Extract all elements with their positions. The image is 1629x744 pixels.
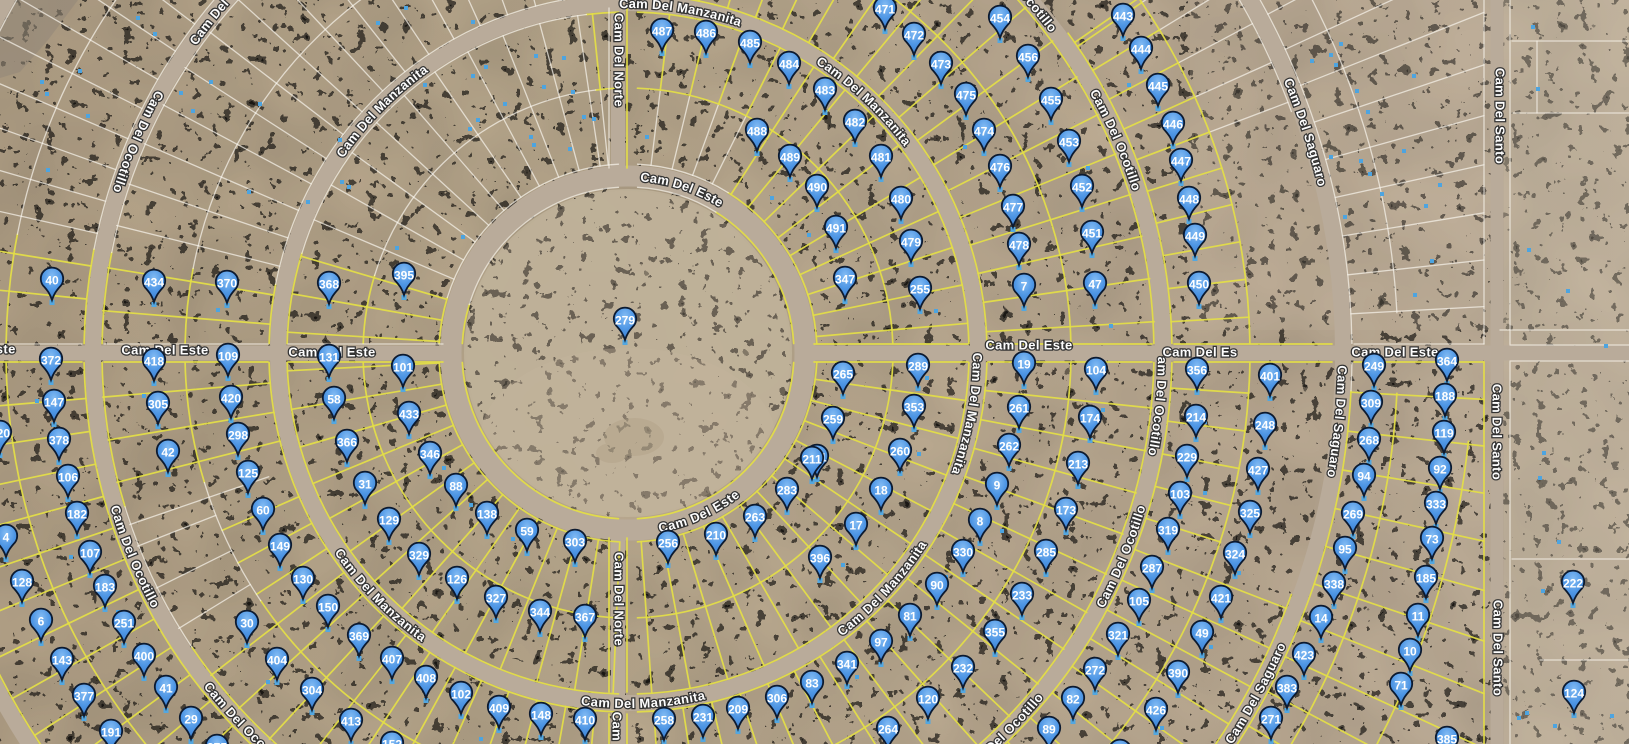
- svg-text:353: 353: [904, 401, 924, 415]
- svg-text:Cam Del Santo: Cam Del Santo: [1490, 384, 1505, 480]
- svg-text:444: 444: [1131, 43, 1151, 57]
- svg-text:347: 347: [835, 273, 855, 287]
- svg-text:147: 147: [44, 396, 64, 410]
- svg-text:489: 489: [780, 151, 800, 165]
- svg-text:483: 483: [815, 84, 835, 98]
- svg-text:479: 479: [901, 236, 921, 250]
- svg-text:214: 214: [1186, 411, 1206, 425]
- svg-text:18: 18: [874, 484, 888, 498]
- svg-text:49: 49: [1195, 627, 1209, 641]
- svg-text:Cam Del Este: Cam Del Este: [1351, 345, 1438, 360]
- svg-text:289: 289: [908, 360, 928, 374]
- svg-text:485: 485: [740, 37, 760, 51]
- svg-text:451: 451: [1082, 227, 1102, 241]
- svg-text:71: 71: [1394, 679, 1408, 693]
- svg-text:477: 477: [1003, 201, 1023, 215]
- svg-text:404: 404: [267, 654, 287, 668]
- svg-text:304: 304: [302, 684, 322, 698]
- svg-text:265: 265: [833, 368, 853, 382]
- svg-text:73: 73: [1425, 533, 1439, 547]
- svg-text:222: 222: [1563, 577, 1583, 591]
- svg-text:408: 408: [416, 672, 436, 686]
- svg-text:378: 378: [49, 434, 69, 448]
- svg-text:42: 42: [161, 446, 175, 460]
- svg-text:367: 367: [575, 611, 595, 625]
- svg-text:262: 262: [999, 440, 1019, 454]
- svg-text:95: 95: [1338, 543, 1352, 557]
- svg-text:105: 105: [1129, 595, 1149, 609]
- svg-text:410: 410: [575, 714, 595, 728]
- svg-text:11: 11: [1412, 610, 1425, 624]
- svg-text:47: 47: [1088, 278, 1102, 292]
- svg-text:264: 264: [878, 723, 898, 737]
- svg-text:Cam Del Este: Cam Del Este: [985, 338, 1072, 353]
- svg-text:7: 7: [1021, 280, 1028, 294]
- svg-text:325: 325: [1240, 507, 1260, 521]
- svg-text:346: 346: [420, 448, 440, 462]
- svg-text:474: 474: [974, 125, 994, 139]
- svg-text:298: 298: [228, 429, 248, 443]
- svg-text:129: 129: [379, 514, 399, 528]
- svg-text:482: 482: [845, 116, 865, 130]
- svg-text:491: 491: [826, 222, 846, 236]
- svg-text:330: 330: [953, 546, 973, 560]
- svg-text:401: 401: [1260, 370, 1280, 384]
- svg-text:356: 356: [1187, 364, 1207, 378]
- svg-text:488: 488: [747, 125, 767, 139]
- svg-text:41: 41: [159, 682, 173, 696]
- svg-text:333: 333: [1426, 498, 1446, 512]
- svg-text:329: 329: [409, 549, 429, 563]
- svg-text:149: 149: [270, 540, 290, 554]
- svg-text:413: 413: [341, 715, 361, 729]
- svg-text:370: 370: [217, 277, 237, 291]
- svg-text:263: 263: [745, 511, 765, 525]
- svg-text:174: 174: [1080, 412, 1100, 426]
- svg-text:305: 305: [148, 398, 168, 412]
- svg-text:119: 119: [1434, 427, 1454, 441]
- svg-text:271: 271: [1261, 713, 1281, 727]
- svg-text:58: 58: [327, 393, 341, 407]
- svg-text:377: 377: [74, 690, 94, 704]
- svg-text:255: 255: [910, 283, 930, 297]
- svg-text:90: 90: [930, 579, 944, 593]
- svg-text:272: 272: [1085, 664, 1105, 678]
- svg-text:409: 409: [489, 702, 509, 716]
- svg-text:445: 445: [1148, 80, 1168, 94]
- svg-text:103: 103: [1170, 488, 1190, 502]
- svg-text:448: 448: [1179, 193, 1199, 207]
- svg-text:88: 88: [449, 480, 463, 494]
- svg-text:19: 19: [1017, 358, 1031, 372]
- svg-text:130: 130: [293, 573, 313, 587]
- svg-text:306: 306: [767, 692, 787, 706]
- svg-text:364: 364: [1437, 355, 1457, 369]
- svg-text:472: 472: [904, 29, 924, 43]
- svg-text:82: 82: [1066, 693, 1080, 707]
- svg-text:452: 452: [1072, 181, 1092, 195]
- svg-text:456: 456: [1018, 51, 1038, 65]
- svg-text:191: 191: [101, 726, 121, 740]
- svg-text:450: 450: [1189, 278, 1209, 292]
- svg-text:369: 369: [349, 630, 369, 644]
- svg-text:287: 287: [1142, 562, 1162, 576]
- svg-text:152: 152: [382, 738, 402, 744]
- svg-text:433: 433: [399, 408, 419, 422]
- svg-text:434: 434: [144, 276, 164, 290]
- svg-text:29: 29: [184, 713, 198, 727]
- svg-text:385: 385: [1437, 733, 1457, 744]
- svg-text:487: 487: [652, 25, 672, 39]
- svg-text:Cam Del Norte: Cam Del Norte: [612, 13, 627, 107]
- svg-text:150: 150: [318, 601, 338, 615]
- svg-text:131: 131: [319, 351, 339, 365]
- svg-text:390: 390: [1168, 667, 1188, 681]
- svg-text:Cam De: Cam De: [610, 712, 625, 744]
- svg-text:229: 229: [1177, 451, 1197, 465]
- svg-text:423: 423: [1294, 649, 1314, 663]
- svg-text:Cam Del Este: Cam Del Este: [0, 342, 16, 357]
- svg-text:268: 268: [1359, 434, 1379, 448]
- svg-text:259: 259: [823, 413, 843, 427]
- svg-text:209: 209: [728, 703, 748, 717]
- svg-text:60: 60: [256, 504, 270, 518]
- svg-text:120: 120: [918, 693, 938, 707]
- svg-text:213: 213: [1068, 458, 1088, 472]
- svg-text:128: 128: [12, 576, 32, 590]
- svg-text:102: 102: [451, 688, 471, 702]
- svg-text:473: 473: [931, 58, 951, 72]
- svg-text:17: 17: [849, 519, 863, 533]
- svg-text:324: 324: [1225, 548, 1245, 562]
- svg-text:188: 188: [1435, 390, 1455, 404]
- svg-text:446: 446: [1163, 118, 1183, 132]
- svg-text:269: 269: [1343, 508, 1363, 522]
- svg-text:210: 210: [706, 529, 726, 543]
- svg-text:256: 256: [658, 537, 678, 551]
- svg-text:396: 396: [810, 552, 830, 566]
- svg-text:283: 283: [777, 484, 797, 498]
- svg-text:125: 125: [238, 467, 258, 481]
- svg-text:400: 400: [134, 650, 154, 664]
- svg-text:366: 366: [337, 436, 357, 450]
- svg-text:89: 89: [1042, 723, 1056, 737]
- svg-text:107: 107: [80, 547, 100, 561]
- svg-text:454: 454: [990, 12, 1010, 26]
- svg-text:420: 420: [221, 392, 241, 406]
- svg-text:421: 421: [1211, 592, 1231, 606]
- svg-text:344: 344: [530, 606, 550, 620]
- svg-text:453: 453: [1059, 136, 1079, 150]
- svg-text:233: 233: [1012, 589, 1032, 603]
- svg-text:478: 478: [1009, 239, 1029, 253]
- svg-text:232: 232: [953, 662, 973, 676]
- svg-text:309: 309: [1361, 397, 1381, 411]
- svg-text:94: 94: [1357, 470, 1371, 484]
- svg-text:92: 92: [1433, 463, 1447, 477]
- svg-text:10: 10: [1403, 645, 1417, 659]
- svg-text:319: 319: [1158, 524, 1178, 538]
- svg-text:231: 231: [693, 711, 713, 725]
- svg-text:481: 481: [871, 151, 891, 165]
- svg-text:97: 97: [874, 636, 888, 650]
- svg-text:143: 143: [52, 654, 72, 668]
- svg-text:6: 6: [38, 615, 45, 629]
- svg-text:372: 372: [41, 354, 61, 368]
- svg-text:327: 327: [486, 592, 506, 606]
- svg-text:338: 338: [1324, 578, 1344, 592]
- svg-text:81: 81: [903, 610, 917, 624]
- svg-text:59: 59: [520, 525, 534, 539]
- svg-text:427: 427: [1248, 464, 1268, 478]
- svg-text:475: 475: [956, 89, 976, 103]
- svg-text:285: 285: [1036, 546, 1056, 560]
- svg-text:476: 476: [990, 161, 1010, 175]
- svg-text:355: 355: [985, 626, 1005, 640]
- svg-text:407: 407: [382, 653, 402, 667]
- svg-text:101: 101: [393, 361, 413, 375]
- svg-text:341: 341: [837, 658, 857, 672]
- svg-text:211: 211: [802, 453, 822, 467]
- svg-text:14: 14: [1314, 612, 1328, 626]
- svg-text:320: 320: [0, 427, 10, 441]
- svg-text:383: 383: [1277, 682, 1297, 696]
- svg-text:447: 447: [1171, 155, 1191, 169]
- svg-text:484: 484: [779, 58, 799, 72]
- svg-text:395: 395: [394, 269, 414, 283]
- svg-text:486: 486: [696, 27, 716, 41]
- svg-text:261: 261: [1009, 402, 1029, 416]
- svg-text:Cam Del Santo: Cam Del Santo: [1493, 68, 1508, 164]
- svg-text:455: 455: [1041, 94, 1061, 108]
- svg-text:83: 83: [805, 677, 819, 691]
- svg-text:490: 490: [807, 181, 827, 195]
- svg-text:104: 104: [1086, 364, 1106, 378]
- svg-text:249: 249: [1364, 360, 1384, 374]
- svg-text:148: 148: [531, 709, 551, 723]
- svg-text:449: 449: [1185, 230, 1205, 244]
- svg-text:260: 260: [890, 445, 910, 459]
- svg-text:Cam Del Santo: Cam Del Santo: [1491, 600, 1506, 696]
- svg-text:9: 9: [994, 479, 1001, 493]
- svg-text:8: 8: [977, 515, 984, 529]
- svg-text:258: 258: [654, 714, 674, 728]
- svg-text:106: 106: [58, 471, 78, 485]
- svg-text:279: 279: [615, 314, 635, 328]
- svg-text:109: 109: [218, 350, 238, 364]
- svg-text:Cam Del Norte: Cam Del Norte: [612, 552, 627, 646]
- svg-text:4: 4: [3, 531, 10, 545]
- svg-text:248: 248: [1255, 419, 1275, 433]
- svg-text:480: 480: [891, 193, 911, 207]
- svg-text:30: 30: [240, 617, 254, 631]
- svg-text:251: 251: [114, 617, 134, 631]
- svg-text:426: 426: [1146, 704, 1166, 718]
- svg-text:471: 471: [875, 3, 895, 17]
- svg-text:443: 443: [1113, 10, 1133, 24]
- svg-text:126: 126: [447, 573, 467, 587]
- svg-text:303: 303: [565, 536, 585, 550]
- svg-text:418: 418: [144, 355, 164, 369]
- svg-text:185: 185: [1416, 572, 1436, 586]
- svg-text:173: 173: [1056, 504, 1076, 518]
- svg-text:40: 40: [45, 274, 59, 288]
- svg-text:183: 183: [95, 581, 115, 595]
- svg-text:182: 182: [67, 508, 87, 522]
- svg-text:321: 321: [1108, 629, 1128, 643]
- svg-text:124: 124: [1564, 687, 1584, 701]
- svg-text:138: 138: [477, 508, 497, 522]
- svg-text:31: 31: [358, 478, 372, 492]
- svg-text:368: 368: [319, 278, 339, 292]
